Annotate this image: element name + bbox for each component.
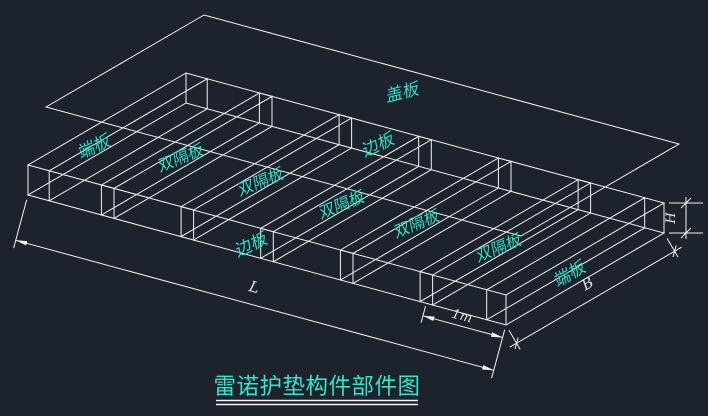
- cad-drawing-canvas: 盖板 端板 边板 双隔板 双隔板 双隔板 双隔板 双隔板 边板 端板 L: [0, 0, 708, 416]
- box-bottom-edges: [28, 103, 664, 325]
- diaphragm-5-label: 双隔板: [475, 229, 523, 266]
- side-plate-top-label: 边板: [361, 128, 397, 162]
- dimension-cell: 1m: [421, 306, 503, 337]
- dimension-height-text: H: [664, 212, 679, 225]
- dimension-cell-text: 1m: [450, 307, 474, 327]
- reno-mattress-diagram: 盖板 端板 边板 双隔板 双隔板 双隔板 双隔板 双隔板 边板 端板 L: [0, 0, 708, 416]
- end-plate-left-inner-panel: [49, 79, 207, 201]
- dimension-length-text: L: [246, 277, 261, 297]
- end-plate-right-inner-panel: [487, 198, 645, 320]
- diaphragm-2-label: 双隔板: [237, 163, 285, 200]
- dimension-length-line: [16, 240, 494, 370]
- drawing-title-text: 雷诺护垫构件部件图: [213, 374, 420, 400]
- dimension-width-text: B: [577, 273, 596, 295]
- dimension-height: H: [664, 197, 703, 239]
- dimension-cell-extension-line: [421, 306, 425, 322]
- part-labels: 端板 边板 双隔板 双隔板 双隔板 双隔板 双隔板 边板 端板: [77, 128, 589, 292]
- dimension-width-line: [510, 247, 682, 347]
- cover-plate-label: 盖板: [386, 79, 420, 107]
- diaphragm-1-label: 双隔板: [157, 139, 205, 176]
- drawing-title: 雷诺护垫构件部件图: [213, 374, 420, 405]
- end-plate-left-label: 端板: [77, 130, 113, 164]
- side-plate-bottom-label: 边板: [234, 228, 270, 262]
- dimension-width: B: [509, 238, 682, 349]
- box-top-edges: [28, 73, 664, 295]
